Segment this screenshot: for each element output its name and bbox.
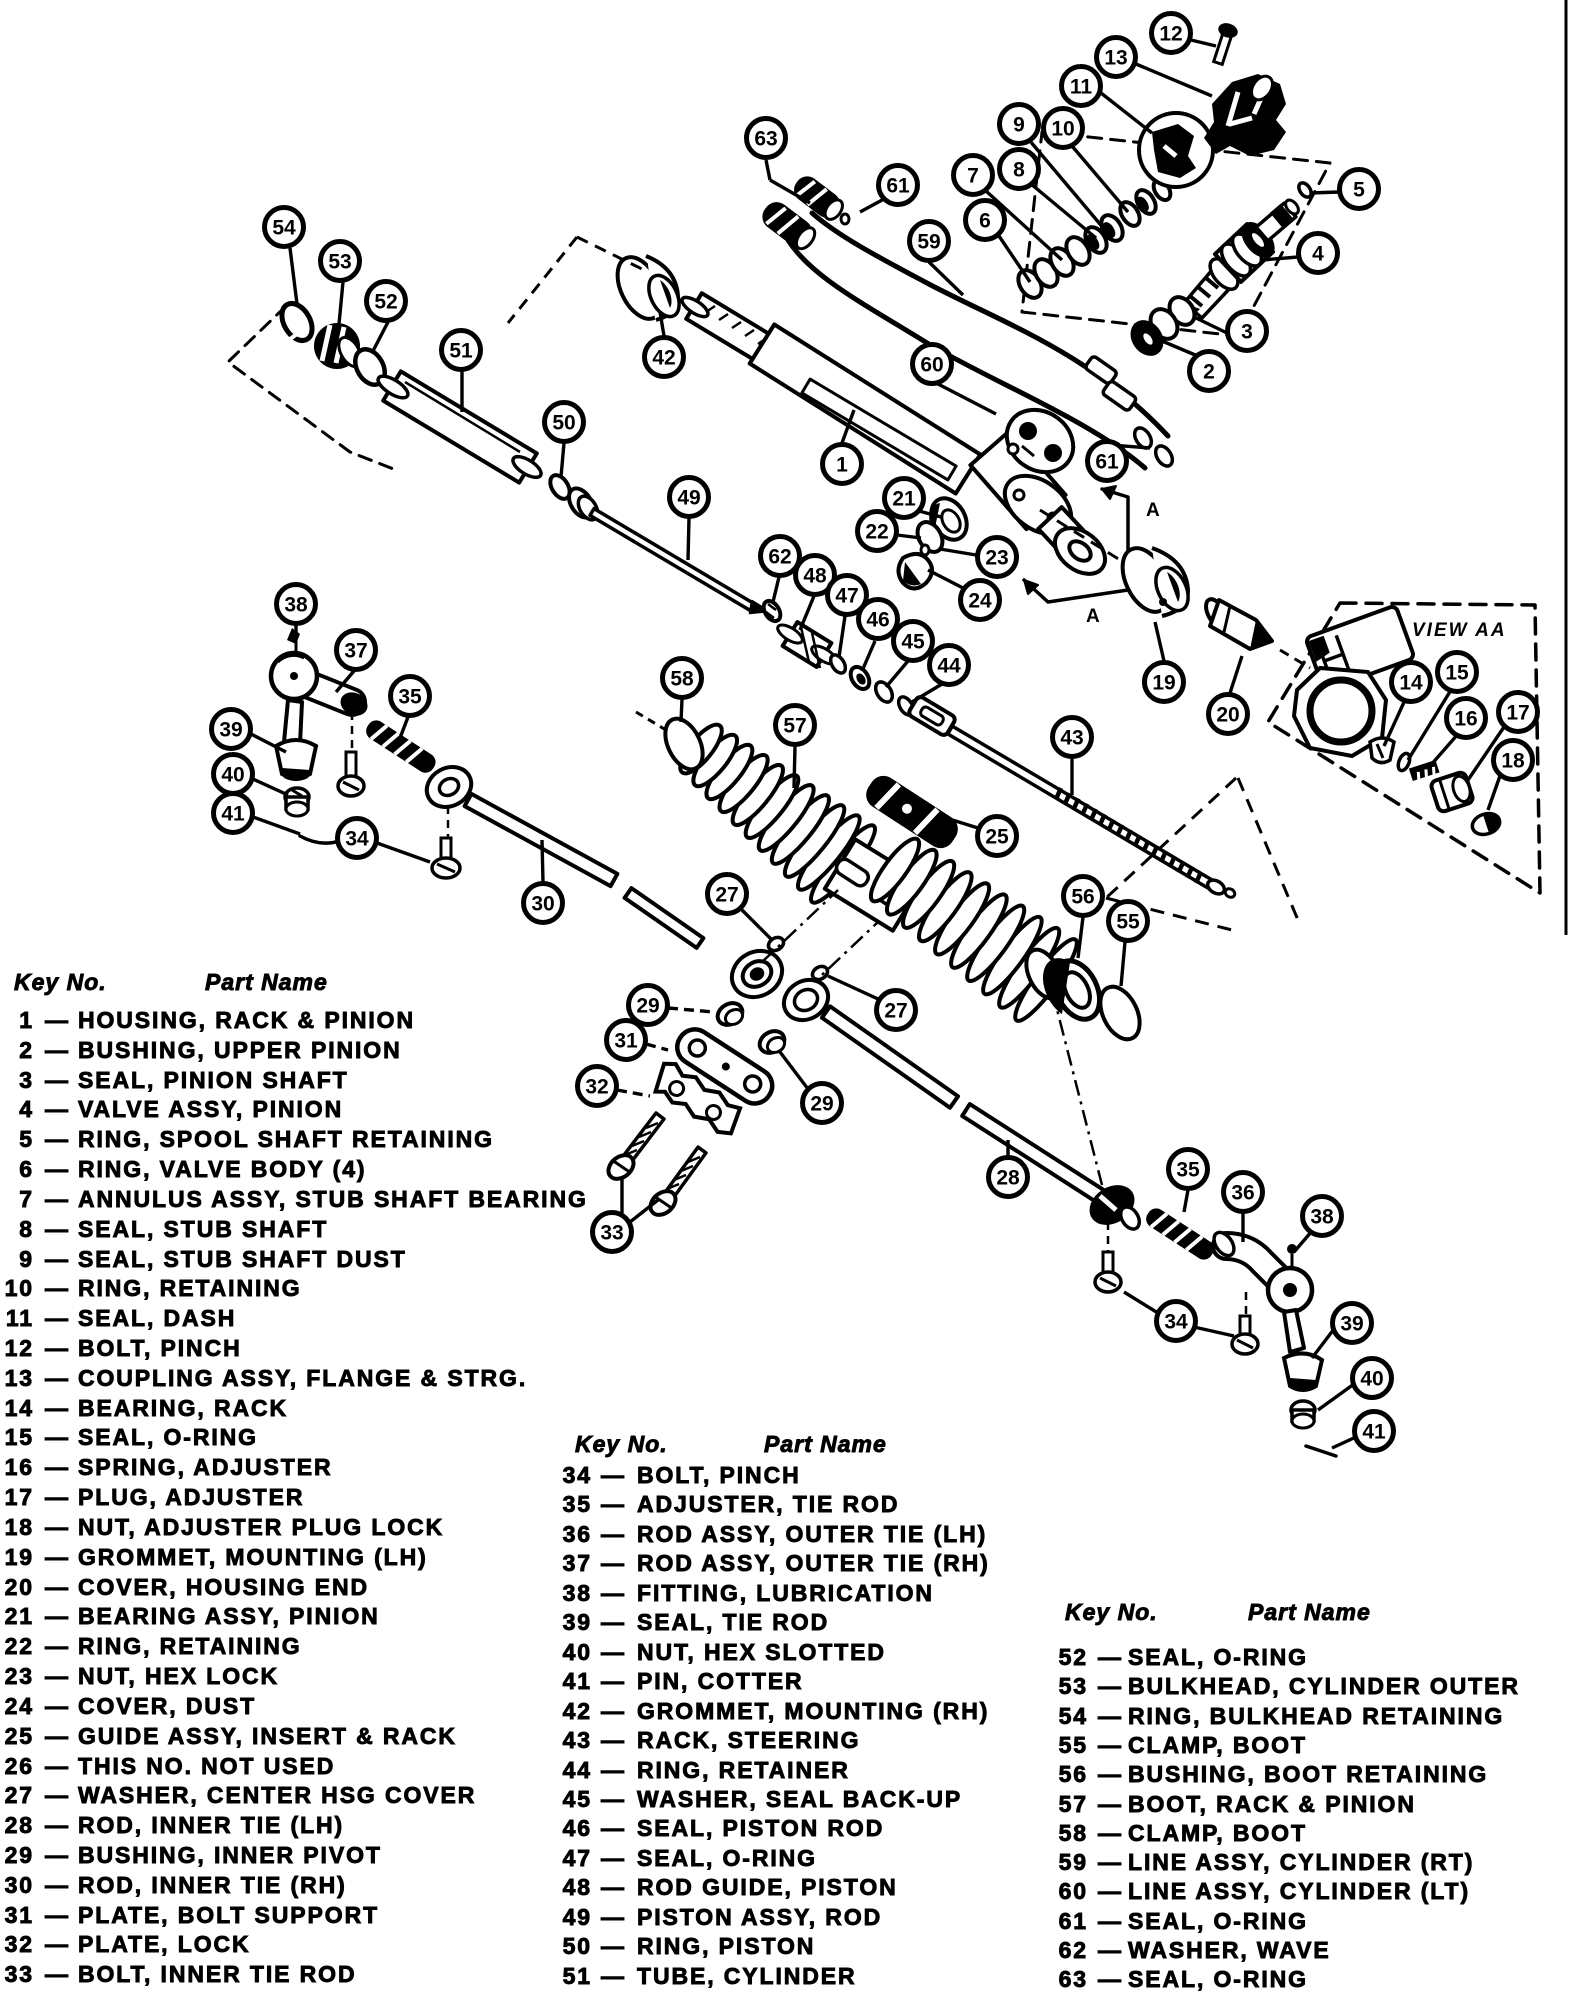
svg-text:16: 16 <box>1454 708 1477 731</box>
svg-text:53: 53 <box>328 251 351 274</box>
svg-text:44: 44 <box>937 655 961 678</box>
svg-text:40: 40 <box>221 764 244 787</box>
svg-text:54: 54 <box>272 217 296 240</box>
svg-text:38: 38 <box>284 594 308 617</box>
svg-text:A: A <box>1086 606 1100 627</box>
svg-text:3: 3 <box>1241 321 1253 344</box>
svg-text:19: 19 <box>1152 672 1175 695</box>
svg-text:63: 63 <box>754 128 777 151</box>
svg-text:8: 8 <box>1013 159 1025 182</box>
svg-text:21: 21 <box>892 488 916 511</box>
svg-text:25: 25 <box>985 826 1009 849</box>
svg-text:34: 34 <box>345 828 369 851</box>
svg-text:46: 46 <box>866 609 889 632</box>
svg-text:22: 22 <box>865 521 888 544</box>
svg-text:47: 47 <box>835 585 858 608</box>
svg-text:56: 56 <box>1071 886 1094 909</box>
svg-text:50: 50 <box>552 412 575 435</box>
svg-text:57: 57 <box>783 715 806 738</box>
svg-text:1: 1 <box>836 454 848 477</box>
svg-text:7: 7 <box>967 165 979 188</box>
svg-text:48: 48 <box>803 565 827 588</box>
svg-text:11: 11 <box>1070 76 1093 99</box>
svg-text:VIEW AA: VIEW AA <box>1412 620 1507 641</box>
svg-text:23: 23 <box>985 547 1008 570</box>
svg-text:58: 58 <box>670 668 694 691</box>
svg-text:61: 61 <box>1095 451 1119 474</box>
svg-text:60: 60 <box>920 354 943 377</box>
svg-text:12: 12 <box>1159 23 1182 46</box>
svg-text:15: 15 <box>1445 662 1469 685</box>
svg-text:17: 17 <box>1506 702 1529 725</box>
svg-text:41: 41 <box>221 803 245 826</box>
svg-text:30: 30 <box>531 893 554 916</box>
svg-text:24: 24 <box>968 590 992 613</box>
svg-text:45: 45 <box>901 631 925 654</box>
svg-text:37: 37 <box>344 640 367 663</box>
svg-text:20: 20 <box>1216 704 1239 727</box>
svg-text:9: 9 <box>1013 114 1025 137</box>
svg-text:5: 5 <box>1353 179 1365 202</box>
svg-text:14: 14 <box>1399 672 1423 695</box>
svg-text:39: 39 <box>219 719 242 742</box>
svg-text:4: 4 <box>1312 243 1324 266</box>
svg-text:35: 35 <box>398 686 422 709</box>
svg-text:18: 18 <box>1501 750 1525 773</box>
svg-text:52: 52 <box>374 291 397 314</box>
svg-text:51: 51 <box>449 340 473 363</box>
svg-text:27: 27 <box>715 884 738 907</box>
svg-text:62: 62 <box>768 546 791 569</box>
svg-text:42: 42 <box>652 347 675 370</box>
svg-text:61: 61 <box>886 175 910 198</box>
svg-text:59: 59 <box>917 231 940 254</box>
svg-text:55: 55 <box>1116 911 1140 934</box>
svg-text:A: A <box>1146 500 1160 521</box>
svg-text:49: 49 <box>677 487 700 510</box>
svg-text:10: 10 <box>1051 118 1074 141</box>
svg-text:43: 43 <box>1060 727 1083 750</box>
svg-text:6: 6 <box>979 210 991 233</box>
svg-text:2: 2 <box>1203 361 1215 384</box>
svg-text:13: 13 <box>1104 47 1127 70</box>
